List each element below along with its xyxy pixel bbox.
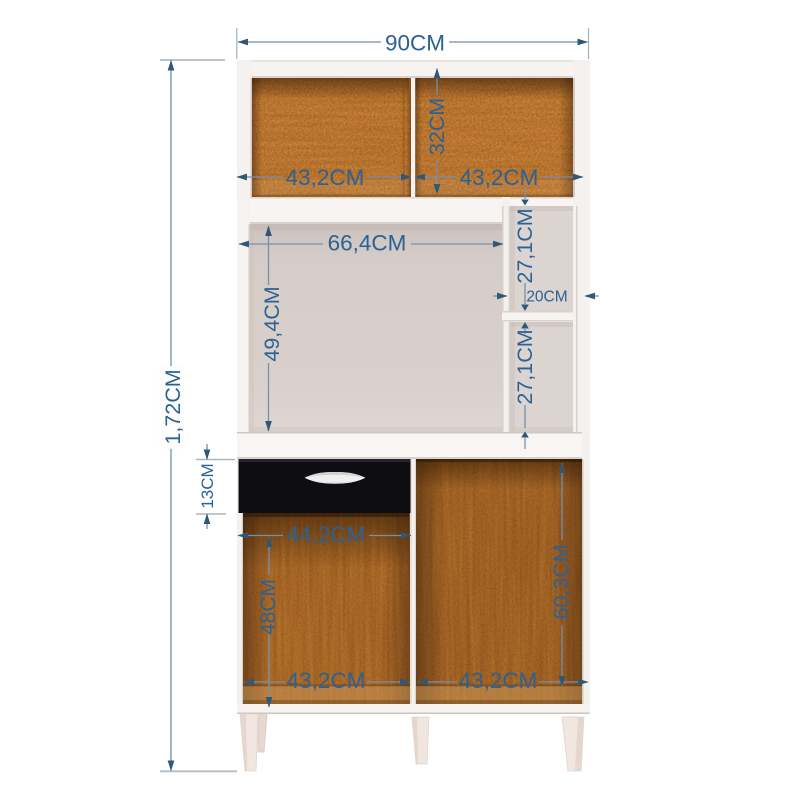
svg-text:44,2CM: 44,2CM xyxy=(287,522,366,547)
svg-text:20CM: 20CM xyxy=(526,289,567,306)
svg-text:1,72CM: 1,72CM xyxy=(161,369,185,444)
svg-text:13CM: 13CM xyxy=(198,463,217,508)
svg-text:27,1CM: 27,1CM xyxy=(513,329,537,404)
svg-text:27,1CM: 27,1CM xyxy=(513,208,537,283)
svg-text:43,2CM: 43,2CM xyxy=(286,165,365,190)
svg-text:43,2CM: 43,2CM xyxy=(460,165,539,190)
svg-text:66,4CM: 66,4CM xyxy=(328,231,407,256)
svg-text:43,2CM: 43,2CM xyxy=(459,668,538,693)
svg-text:43,2CM: 43,2CM xyxy=(287,668,366,693)
svg-text:48CM: 48CM xyxy=(257,579,280,635)
svg-text:32CM: 32CM xyxy=(425,98,449,155)
svg-text:60,3CM: 60,3CM xyxy=(549,544,573,619)
svg-text:49,4CM: 49,4CM xyxy=(260,286,284,361)
svg-text:90CM: 90CM xyxy=(385,31,445,56)
